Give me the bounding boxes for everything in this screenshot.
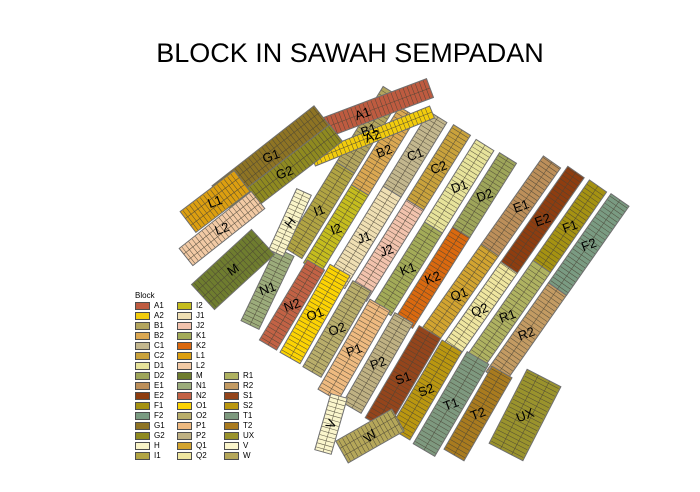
- legend-swatch-A1: [135, 302, 150, 310]
- legend-swatch-T2: [224, 422, 239, 430]
- legend-swatch-N1: [177, 382, 192, 390]
- legend-item-L2: L2: [177, 361, 207, 371]
- legend-item-J1: J1: [177, 311, 207, 321]
- legend-swatch-E2: [135, 392, 150, 400]
- legend-item-M: M: [177, 371, 207, 381]
- legend-swatch-O2: [177, 412, 192, 420]
- map-canvas: BLOCK IN SAWAH SEMPADAN I1B1I2B2J1C1J2C2…: [0, 0, 700, 492]
- legend-item-T1: T1: [224, 411, 254, 421]
- legend-item-C1: C1: [135, 341, 165, 351]
- legend-label-Q1: Q1: [196, 441, 207, 451]
- legend-title: Block: [135, 291, 155, 300]
- legend-label-J2: J2: [196, 321, 204, 331]
- legend-label-R2: R2: [243, 381, 253, 391]
- legend-label-L1: L1: [196, 351, 205, 361]
- legend-swatch-M: [177, 372, 192, 380]
- legend-label-S1: S1: [243, 391, 253, 401]
- legend-label-T1: T1: [243, 411, 252, 421]
- legend-swatch-G2: [135, 432, 150, 440]
- legend-item-E2: E2: [135, 391, 165, 401]
- legend-swatch-V: [224, 442, 239, 450]
- legend-item-I2: I2: [177, 301, 207, 311]
- legend-swatch-C1: [135, 342, 150, 350]
- legend-label-P2: P2: [196, 431, 206, 441]
- legend-item-F1: F1: [135, 401, 165, 411]
- legend-item-L1: L1: [177, 351, 207, 361]
- legend-swatch-I2: [177, 302, 192, 310]
- legend-label-T2: T2: [243, 421, 252, 431]
- legend-label-D2: D2: [154, 371, 164, 381]
- legend-swatch-F2: [135, 412, 150, 420]
- legend-item-A2: A2: [135, 311, 165, 321]
- legend-label-A1: A1: [154, 301, 164, 311]
- legend-swatch-K1: [177, 332, 192, 340]
- legend-item-H: H: [135, 441, 165, 451]
- legend-swatch-J2: [177, 322, 192, 330]
- legend-swatch-I1: [135, 452, 150, 460]
- legend-swatch-J1: [177, 312, 192, 320]
- legend-item-S2: S2: [224, 401, 254, 411]
- legend-item-B1: B1: [135, 321, 165, 331]
- legend-swatch-G1: [135, 422, 150, 430]
- legend-item-P1: P1: [177, 421, 207, 431]
- legend-item-D1: D1: [135, 361, 165, 371]
- legend-item-D2: D2: [135, 371, 165, 381]
- legend-label-Q2: Q2: [196, 451, 207, 461]
- legend-label-F1: F1: [154, 401, 163, 411]
- legend-item-O2: O2: [177, 411, 207, 421]
- legend-column-2: I2J1J2K1K2L1L2MN1N2O1O2P1P2Q1Q2: [177, 301, 207, 461]
- legend-label-G1: G1: [154, 421, 165, 431]
- legend-label-W: W: [243, 451, 251, 461]
- legend-swatch-L2: [177, 362, 192, 370]
- legend-swatch-N2: [177, 392, 192, 400]
- legend-item-K2: K2: [177, 341, 207, 351]
- legend-label-UX: UX: [243, 431, 254, 441]
- legend-item-W: W: [224, 451, 254, 461]
- legend-label-B2: B2: [154, 331, 164, 341]
- legend-item-G2: G2: [135, 431, 165, 441]
- legend-item-O1: O1: [177, 401, 207, 411]
- legend-label-B1: B1: [154, 321, 164, 331]
- legend-item-P2: P2: [177, 431, 207, 441]
- legend-item-R2: R2: [224, 381, 254, 391]
- legend-label-A2: A2: [154, 311, 164, 321]
- legend-swatch-Q1: [177, 442, 192, 450]
- legend-swatch-T1: [224, 412, 239, 420]
- legend-item-F2: F2: [135, 411, 165, 421]
- legend-swatch-S1: [224, 392, 239, 400]
- legend-label-E2: E2: [154, 391, 164, 401]
- legend-item-R1: R1: [224, 371, 254, 381]
- legend-item-Q1: Q1: [177, 441, 207, 451]
- legend-item-A1: A1: [135, 301, 165, 311]
- legend-swatch-L1: [177, 352, 192, 360]
- legend-item-G1: G1: [135, 421, 165, 431]
- legend-label-H: H: [154, 441, 160, 451]
- legend-label-F2: F2: [154, 411, 163, 421]
- legend-item-Q2: Q2: [177, 451, 207, 461]
- legend-swatch-B1: [135, 322, 150, 330]
- legend-label-E1: E1: [154, 381, 164, 391]
- legend-label-I1: I1: [154, 451, 161, 461]
- legend-label-C1: C1: [154, 341, 164, 351]
- legend-label-M: M: [196, 371, 203, 381]
- legend-swatch-C2: [135, 352, 150, 360]
- legend-swatch-F1: [135, 402, 150, 410]
- legend-label-L2: L2: [196, 361, 205, 371]
- legend-label-G2: G2: [154, 431, 165, 441]
- legend-swatch-O1: [177, 402, 192, 410]
- legend-swatch-R2: [224, 382, 239, 390]
- legend-label-R1: R1: [243, 371, 253, 381]
- legend-item-N2: N2: [177, 391, 207, 401]
- legend-item-J2: J2: [177, 321, 207, 331]
- legend-label-S2: S2: [243, 401, 253, 411]
- legend-item-K1: K1: [177, 331, 207, 341]
- legend-item-S1: S1: [224, 391, 254, 401]
- legend-label-P1: P1: [196, 421, 206, 431]
- legend-swatch-R1: [224, 372, 239, 380]
- legend-label-N1: N1: [196, 381, 206, 391]
- legend-swatch-K2: [177, 342, 192, 350]
- legend-label-N2: N2: [196, 391, 206, 401]
- legend-column-1: A1A2B1B2C1C2D1D2E1E2F1F2G1G2HI1: [135, 301, 165, 461]
- legend-swatch-W: [224, 452, 239, 460]
- legend-item-UX: UX: [224, 431, 254, 441]
- legend-swatch-S2: [224, 402, 239, 410]
- legend-swatch-P1: [177, 422, 192, 430]
- legend-item-E1: E1: [135, 381, 165, 391]
- legend-swatch-H: [135, 442, 150, 450]
- legend-swatch-E1: [135, 382, 150, 390]
- legend-swatch-P2: [177, 432, 192, 440]
- legend-item-I1: I1: [135, 451, 165, 461]
- legend-swatch-D1: [135, 362, 150, 370]
- legend-item-V: V: [224, 441, 254, 451]
- legend-label-I2: I2: [196, 301, 203, 311]
- legend-label-K2: K2: [196, 341, 206, 351]
- legend-label-D1: D1: [154, 361, 164, 371]
- legend-label-K1: K1: [196, 331, 206, 341]
- legend-swatch-B2: [135, 332, 150, 340]
- legend-label-V: V: [243, 441, 248, 451]
- legend-label-O2: O2: [196, 411, 207, 421]
- legend-swatch-Q2: [177, 452, 192, 460]
- legend-item-T2: T2: [224, 421, 254, 431]
- legend-item-N1: N1: [177, 381, 207, 391]
- legend-label-J1: J1: [196, 311, 204, 321]
- legend-column-3: R1R2S1S2T1T2UXVW: [224, 371, 254, 461]
- block-map: I1B1I2B2J1C1J2C2K1D1K2D2Q1E1Q2E2R1F1R2F2…: [0, 0, 700, 492]
- legend-item-B2: B2: [135, 331, 165, 341]
- legend-label-O1: O1: [196, 401, 207, 411]
- legend-swatch-D2: [135, 372, 150, 380]
- legend-swatch-A2: [135, 312, 150, 320]
- legend-item-C2: C2: [135, 351, 165, 361]
- legend-label-C2: C2: [154, 351, 164, 361]
- legend-swatch-UX: [224, 432, 239, 440]
